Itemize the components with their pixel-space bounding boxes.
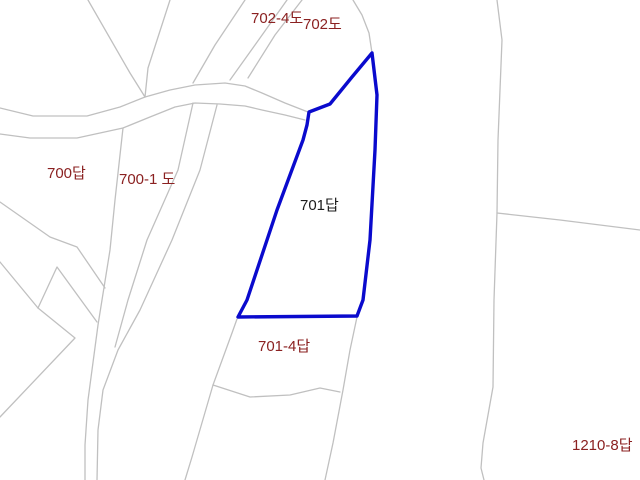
boundary-parcel-701-4-west-edge <box>185 319 237 480</box>
boundary-road-upper-edge <box>0 83 308 116</box>
boundary-west-zigzag-c <box>0 308 75 417</box>
boundary-north-diagonal-d <box>230 0 287 80</box>
boundary-north-diagonal-e <box>248 0 302 78</box>
boundary-parcel-701-4-east-edge <box>325 317 357 480</box>
boundary-path-700-1-west-edge <box>85 128 123 480</box>
parcel-map-svg <box>0 0 640 480</box>
boundary-path-700-1-east-edge <box>115 103 193 347</box>
cadastral-map[interactable]: 702-4도702도700답700-1 도701답701-4답1210-8답 <box>0 0 640 480</box>
boundary-west-zigzag-b <box>0 262 38 308</box>
boundary-parcel-701-4-south-boundary <box>213 385 340 397</box>
boundary-west-zigzag-a <box>0 202 105 288</box>
boundary-northwest-diagonal-a <box>88 0 145 97</box>
boundary-east-branch-boundary <box>497 213 640 230</box>
boundary-east-long-boundary <box>481 0 502 480</box>
boundary-northwest-diagonal-b <box>145 0 170 97</box>
selected-parcel-outline[interactable] <box>238 53 377 317</box>
boundary-path-700-1-outer-east-edge <box>97 105 217 480</box>
boundary-parcel-702-dome-edge <box>353 0 372 53</box>
boundary-road-lower-edge <box>0 103 305 138</box>
boundary-west-spike <box>38 267 97 322</box>
